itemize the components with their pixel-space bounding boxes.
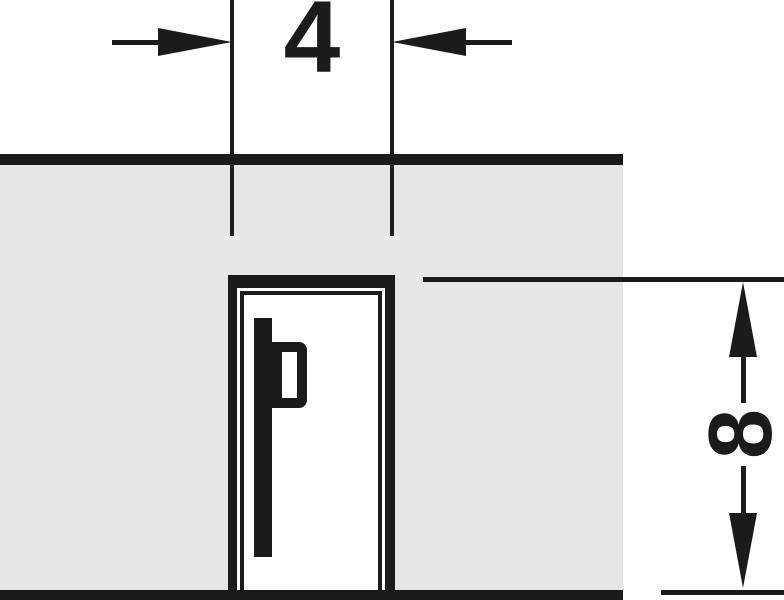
depth-arrowhead-up-icon [729, 282, 757, 357]
depth-reference-line-bottom [661, 590, 784, 595]
clip-profile-bar [254, 318, 272, 557]
depth-dimension-line-lower [741, 466, 746, 519]
technical-drawing-canvas: 4 8 [0, 0, 784, 600]
groove-width-dimension-label: 4 [232, 0, 392, 88]
depth-arrowhead-down-icon [729, 513, 757, 588]
panel-bottom-edge-line [0, 590, 623, 600]
width-arrowhead-left-icon [158, 28, 232, 56]
groove-depth-dimension-label: 8 [691, 384, 784, 484]
width-arrow-left-tail [112, 40, 160, 45]
width-arrowhead-right-icon [392, 28, 466, 56]
panel-top-edge-line [0, 154, 623, 165]
width-arrow-right-tail [464, 40, 512, 45]
clip-profile-hook [272, 342, 307, 408]
